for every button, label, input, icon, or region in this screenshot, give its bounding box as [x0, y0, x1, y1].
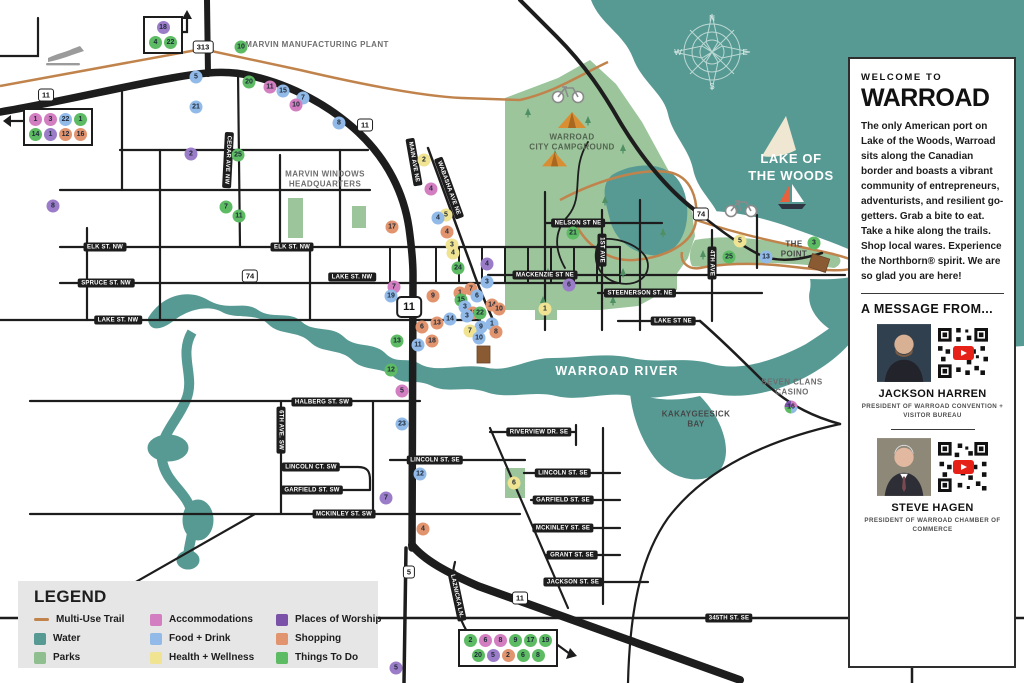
map-marker-5-worship: 5 — [487, 649, 500, 662]
legend-label: Shopping — [295, 633, 341, 644]
marker-group-3: 26891719205268 — [458, 629, 558, 667]
svg-text:S: S — [709, 82, 714, 91]
highway-shield-11: 11 — [38, 89, 54, 102]
map-marker-16-casino: 16 — [785, 401, 798, 414]
legend-item-places-of-worship: Places of Worship — [276, 610, 384, 629]
map-marker-11-food: 11 — [412, 339, 425, 352]
map-marker-14-things: 14 — [29, 128, 42, 141]
legend-item-things-to-do: Things To Do — [276, 648, 384, 667]
kakaygeesick-bay-water — [630, 392, 726, 479]
map-marker-14-food: 14 — [444, 313, 457, 326]
map-marker-22-food: 22 — [59, 113, 72, 126]
welcome-kicker: WELCOME TO — [861, 72, 1004, 83]
map-marker-6-worship: 6 — [563, 279, 576, 292]
map-marker-4-stay: 4 — [425, 183, 438, 196]
map-marker-10-stay: 10 — [290, 99, 303, 112]
map-marker-8-things: 8 — [532, 649, 545, 662]
map-marker-8-worship: 8 — [47, 200, 60, 213]
steve-hagen-photo — [877, 438, 931, 496]
map-marker-13-things: 13 — [391, 335, 404, 348]
street-sign-jackson-st-se: JACKSON ST. SE — [543, 578, 602, 587]
divider — [891, 429, 975, 430]
person-card: STEVE HAGEN PRESIDENT OF WARROAD CHAMBER… — [861, 438, 1004, 535]
legend-swatch-places-of-worship — [276, 614, 288, 626]
legend-swatch-multi-use-trail — [34, 618, 49, 621]
legend-label: Health + Wellness — [169, 652, 254, 663]
map-marker-4-health: 4 — [447, 247, 460, 260]
map-marker-18-shop: 18 — [426, 335, 439, 348]
street-sign-lincoln-ct-sw: LINCOLN CT. SW — [282, 463, 340, 472]
highway-shield-11: 11 — [396, 296, 422, 318]
legend-item-shopping: Shopping — [276, 629, 384, 648]
person-role: PRESIDENT OF WARROAD CHAMBER OF COMMERCE — [861, 516, 1004, 535]
map-marker-13-shop: 13 — [431, 317, 444, 330]
street-sign-4th-ave: 4TH AVE — [708, 246, 717, 279]
map-marker-20-things: 20 — [243, 76, 256, 89]
legend-swatch-water — [34, 633, 46, 645]
street-sign-6th-ave-sw: 6TH AVE. SW — [277, 407, 286, 454]
map-marker-19-food: 19 — [385, 290, 398, 303]
street-sign-mckinley-st-sw: MCKINLEY ST. SW — [313, 510, 376, 519]
map-marker-25-things: 25 — [232, 149, 245, 162]
legend-item-parks: Parks — [34, 648, 150, 667]
map-marker-2-shop: 2 — [502, 649, 515, 662]
legend-swatch-shopping — [276, 633, 288, 645]
map-marker-12-things: 12 — [385, 364, 398, 377]
map-marker-25-things: 25 — [723, 251, 736, 264]
person-name: JACKSON HARREN — [861, 388, 1004, 400]
map-marker-6-things: 6 — [517, 649, 530, 662]
map-marker-3-food: 3 — [461, 310, 474, 323]
map-marker-5-food: 5 — [190, 71, 203, 84]
street-sign-steenerson-st-ne: STEENERSON ST. NE — [604, 289, 676, 298]
highway-shield-11: 11 — [357, 119, 373, 132]
map-marker-6-food: 6 — [471, 290, 484, 303]
map-marker-2-things: 2 — [464, 634, 477, 647]
map-marker-3-things: 3 — [808, 237, 821, 250]
legend-item-health-wellness: Health + Wellness — [150, 648, 276, 667]
map-marker-21-things: 21 — [567, 227, 580, 240]
map-marker-10-food: 10 — [473, 332, 486, 345]
qr-code — [938, 328, 988, 378]
legend-label: Things To Do — [295, 652, 358, 663]
map-marker-10-things: 10 — [235, 41, 248, 54]
legend: LEGEND Multi-Use TrailWaterParksAccommod… — [18, 581, 378, 668]
street-sign-lake-st-ne: LAKE ST NE — [651, 317, 696, 326]
creek-water — [148, 332, 213, 569]
marker-group-2: 132211411216 — [23, 108, 93, 146]
divider — [861, 293, 1004, 294]
map-marker-1-health: 1 — [539, 303, 552, 316]
legend-item-water: Water — [34, 629, 150, 648]
map-marker-1-stay: 1 — [29, 113, 42, 126]
legend-swatch-health-wellness — [150, 652, 162, 664]
map-marker-7-things: 7 — [220, 201, 233, 214]
legend-swatch-things-to-do — [276, 652, 288, 664]
street-sign-345th-st-se: 345TH ST. SE — [705, 614, 752, 623]
map-marker-24-things: 24 — [452, 262, 465, 275]
youtube-icon — [953, 460, 974, 474]
legend-swatch-food-drink — [150, 633, 162, 645]
map-marker-20-things: 20 — [472, 649, 485, 662]
map-marker-15-food: 15 — [277, 85, 290, 98]
map-marker-6-stay: 6 — [479, 634, 492, 647]
map-marker-3-stay: 3 — [44, 113, 57, 126]
map-marker-1-worship: 1 — [44, 128, 57, 141]
map-marker-4-food: 4 — [432, 212, 445, 225]
map-marker-12-shop: 12 — [59, 128, 72, 141]
street-sign-lincoln-st-se: LINCOLN ST. SE — [535, 469, 591, 478]
warroad-logo: WARROAD — [861, 84, 1004, 113]
map-marker-11-things: 11 — [233, 210, 246, 223]
map-marker-10-shop: 10 — [493, 303, 506, 316]
qr-code — [938, 442, 988, 492]
youtube-icon — [953, 346, 974, 360]
person-name: STEVE HAGEN — [861, 502, 1004, 514]
map-marker-4-shop: 4 — [417, 523, 430, 536]
map-marker-22-things: 22 — [164, 36, 177, 49]
svg-text:W: W — [674, 48, 682, 57]
map-marker-17-things: 17 — [524, 634, 537, 647]
street-sign-garfield-st-se: GARFIELD ST. SE — [533, 496, 594, 505]
legend-label: Accommodations — [169, 614, 253, 625]
map-marker-13-food: 13 — [760, 251, 773, 264]
map-marker-5-stay: 5 — [396, 385, 409, 398]
map-marker-11-stay: 11 — [264, 81, 277, 94]
snowmobile-icon — [46, 46, 84, 65]
map-marker-8-stay: 8 — [494, 634, 507, 647]
legend-label: Places of Worship — [295, 614, 382, 625]
highway-shield-11: 11 — [512, 592, 528, 605]
map-marker-4-shop: 4 — [441, 226, 454, 239]
street-sign-elk-st-nw: ELK ST. NW — [271, 243, 314, 252]
map-marker-9-things: 9 — [509, 634, 522, 647]
map-marker-3-food: 3 — [481, 276, 494, 289]
message-heading: A MESSAGE FROM... — [861, 302, 1004, 316]
map-marker-5-worship: 5 — [390, 662, 403, 675]
map-marker-1-things: 1 — [74, 113, 87, 126]
legend-swatch-accommodations — [150, 614, 162, 626]
person-role: PRESIDENT OF WARROAD CONVENTION + VISITO… — [861, 402, 1004, 421]
street-sign-elk-st-nw: ELK ST. NW — [84, 243, 127, 252]
street-sign-nelson-st-ne: NELSON ST NE — [551, 219, 605, 228]
legend-label: Food + Drink — [169, 633, 230, 644]
street-sign-lincoln-st-se: LINCOLN ST. SE — [407, 456, 463, 465]
map-marker-8-food: 8 — [333, 117, 346, 130]
map-marker-4-things: 4 — [149, 36, 162, 49]
map-marker-16-shop: 16 — [74, 128, 87, 141]
highway-shield-5: 5 — [403, 566, 415, 579]
map-marker-18-worship: 18 — [157, 21, 170, 34]
map-marker-23-food: 23 — [396, 418, 409, 431]
map-marker-9-shop: 9 — [427, 290, 440, 303]
map-marker-7-worship: 7 — [380, 492, 393, 505]
map-marker-17-shop: 17 — [386, 221, 399, 234]
map-marker-6-shop: 6 — [416, 321, 429, 334]
svg-text:E: E — [742, 48, 747, 57]
map-marker-12-food: 12 — [414, 468, 427, 481]
legend-item-accommodations: Accommodations — [150, 610, 276, 629]
highway-shield-313: 313 — [193, 41, 214, 54]
legend-items: Multi-Use TrailWaterParksAccommodationsF… — [34, 610, 378, 667]
street-sign-lake-st-nw: LAKE ST. NW — [94, 316, 142, 325]
highway-shield-74: 74 — [242, 270, 258, 283]
jackson-harren-photo — [877, 324, 931, 382]
street-sign-garfield-st-sw: GARFIELD ST. SW — [281, 486, 343, 495]
map-marker-4-worship: 4 — [481, 258, 494, 271]
map-marker-6-health: 6 — [508, 477, 521, 490]
street-sign-riverview-dr-se: RIVERVIEW DR. SE — [506, 428, 571, 437]
street-sign-mckinley-st-se: MCKINLEY ST. SE — [532, 524, 593, 533]
street-sign-lake-st-nw: LAKE ST. NW — [328, 273, 376, 282]
map-marker-8-shop: 8 — [490, 326, 503, 339]
street-sign-halberg-st-sw: HALBERG ST. SW — [291, 398, 352, 407]
highway-shield-74: 74 — [693, 208, 709, 221]
street-sign-1st-ave: 1ST AVE — [598, 234, 607, 267]
legend-label: Water — [53, 633, 80, 644]
warroad-visitor-map: N S W E LEGEND Multi-Use TrailWaterParks… — [0, 0, 1024, 683]
legend-label: Multi-Use Trail — [56, 614, 124, 625]
legend-item-multi-use-trail: Multi-Use Trail — [34, 610, 150, 629]
street-sign-spruce-st-nw: SPRUCE ST. NW — [78, 279, 135, 288]
map-marker-21-food: 21 — [190, 101, 203, 114]
legend-item-food-drink: Food + Drink — [150, 629, 276, 648]
map-marker-5-health: 5 — [734, 235, 747, 248]
map-marker-2-health: 2 — [418, 154, 431, 167]
intro-paragraph: The only American port on Lake of the Wo… — [861, 119, 1004, 284]
svg-text:N: N — [709, 14, 715, 23]
legend-label: Parks — [53, 652, 80, 663]
legend-title: LEGEND — [34, 587, 378, 607]
welcome-panel: WELCOME TO WARROAD The only American por… — [848, 57, 1016, 668]
map-marker-22-things: 22 — [474, 307, 487, 320]
person-card: JACKSON HARREN PRESIDENT OF WARROAD CONV… — [861, 324, 1004, 421]
map-marker-19-things: 19 — [539, 634, 552, 647]
marker-group-1: 18422 — [143, 16, 183, 54]
street-sign-grant-st-se: GRANT ST. SE — [547, 551, 598, 560]
legend-swatch-parks — [34, 652, 46, 664]
map-marker-2-worship: 2 — [185, 148, 198, 161]
